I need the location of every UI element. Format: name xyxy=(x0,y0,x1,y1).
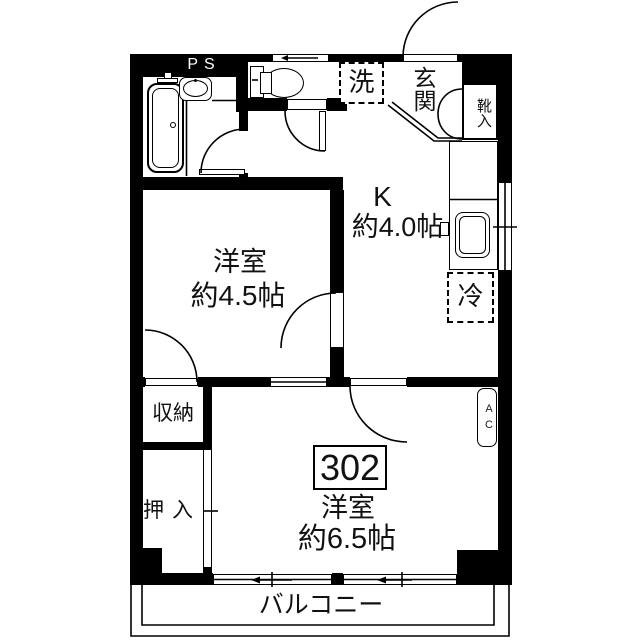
western-room-b-size-label: 約6.5帖 xyxy=(287,524,407,554)
unit-number: 302 xyxy=(313,447,387,489)
fridge-label: 冷 xyxy=(447,283,494,310)
shoe-door-arc-top xyxy=(438,89,462,114)
bath-door-arc xyxy=(201,129,245,173)
floorplan: PS 洗 玄関 靴入 K 約4.0帖 洋室 約4.5帖 冷 収納 押入 302 … xyxy=(0,0,640,640)
western-room-b-label: 洋室 xyxy=(288,494,408,522)
ps-label: PS xyxy=(180,57,228,74)
balcony-arrowhead-left xyxy=(251,577,260,584)
balcony-arrowhead-right xyxy=(377,577,386,584)
entrance-door-arc xyxy=(403,2,458,57)
interior-window-cap-left xyxy=(267,377,271,387)
storage-label: 収納 xyxy=(142,403,204,425)
laundry-area-label: 洗 xyxy=(339,69,384,96)
toilet-window-arrowhead xyxy=(281,55,288,61)
shoe-door-arc-bottom xyxy=(438,114,462,139)
main-room-door-arc xyxy=(350,386,407,442)
interior-window-cap-right xyxy=(326,377,330,387)
western-room-a-size-label: 約4.5帖 xyxy=(178,281,298,310)
balcony-label: バルコニー xyxy=(221,592,421,618)
kitchen-label: K xyxy=(340,182,425,211)
western-room-a-label: 洋室 xyxy=(180,248,300,276)
storage-door-arc xyxy=(145,330,197,382)
ac-unit-label: AC xyxy=(481,395,494,443)
closet-label: 押入 xyxy=(138,500,206,522)
kitchen-size-label: 約4.0帖 xyxy=(340,213,455,241)
shoe-cabinet-label: 靴入 xyxy=(470,88,491,138)
entrance-label: 玄関 xyxy=(407,61,435,117)
toilet-door-arc xyxy=(285,111,325,151)
